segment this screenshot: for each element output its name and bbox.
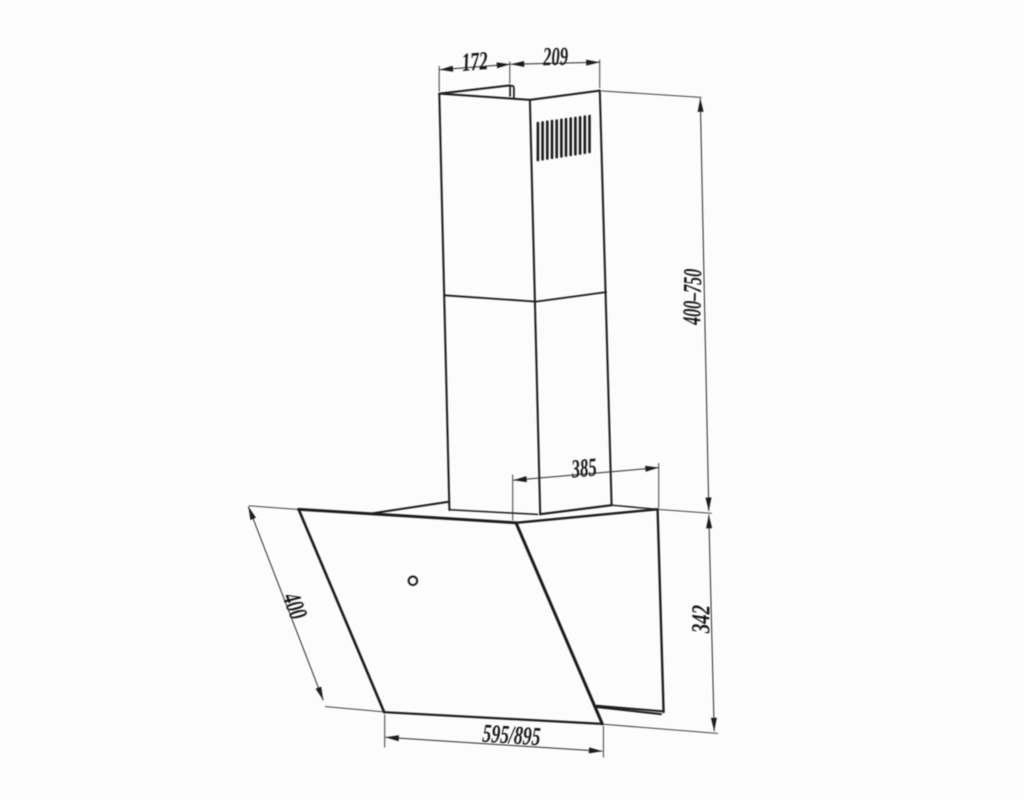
svg-text:385: 385	[570, 452, 598, 483]
svg-text:172: 172	[461, 46, 489, 77]
svg-text:595/895: 595/895	[482, 719, 542, 752]
svg-text:400–750: 400–750	[677, 269, 707, 326]
svg-text:342: 342	[686, 605, 715, 634]
svg-text:209: 209	[542, 42, 568, 72]
